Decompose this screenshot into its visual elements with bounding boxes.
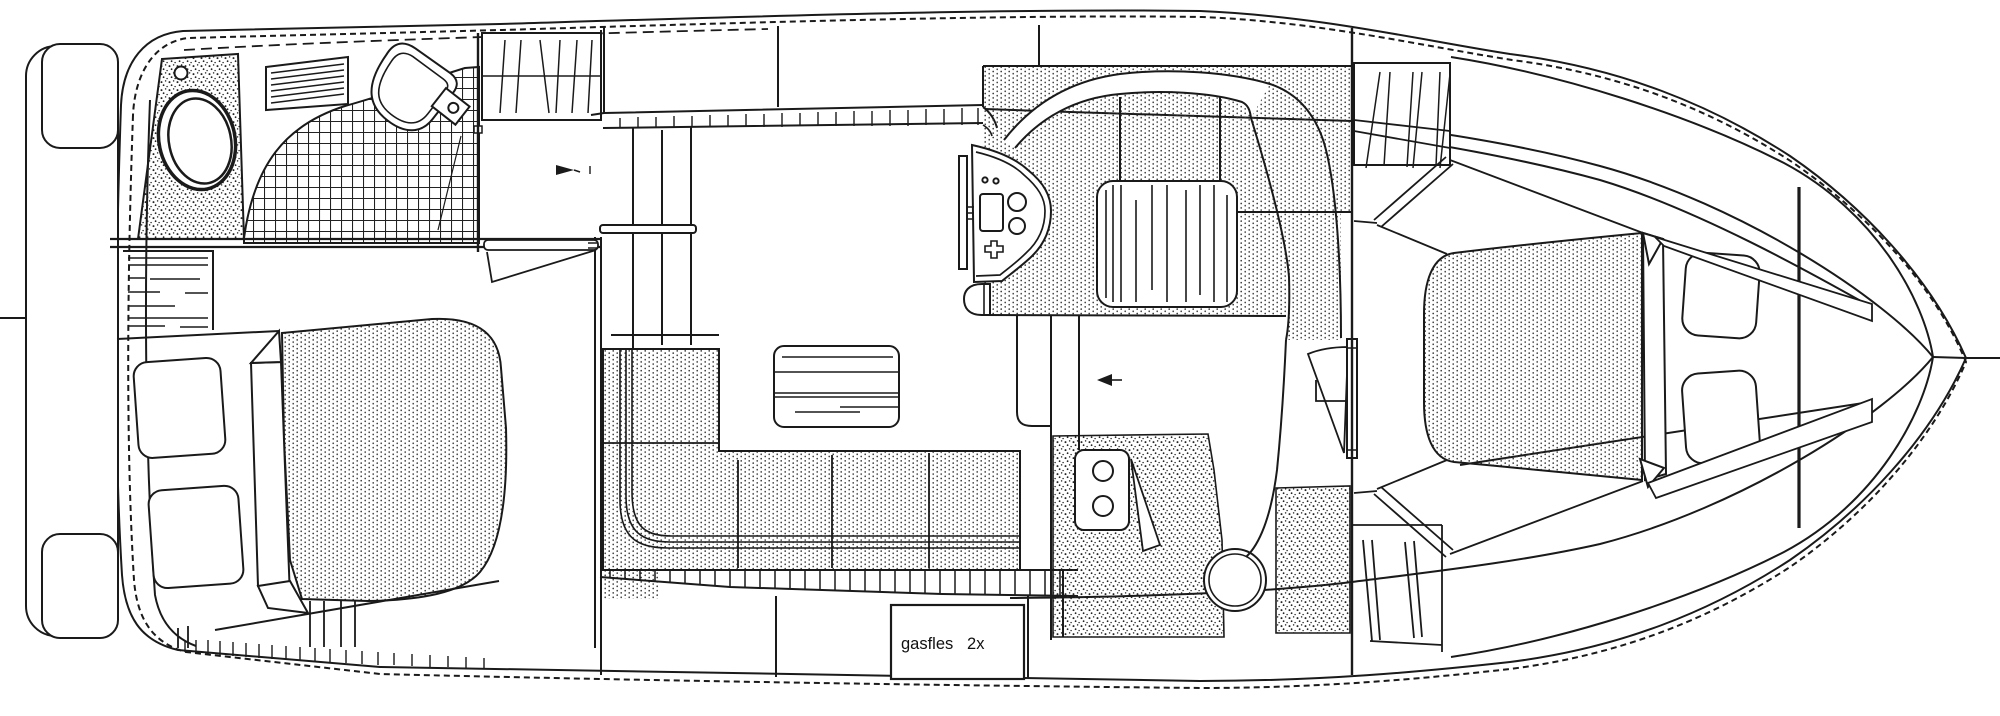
svg-text:gasfles 2x: gasfles 2x: [901, 635, 985, 653]
